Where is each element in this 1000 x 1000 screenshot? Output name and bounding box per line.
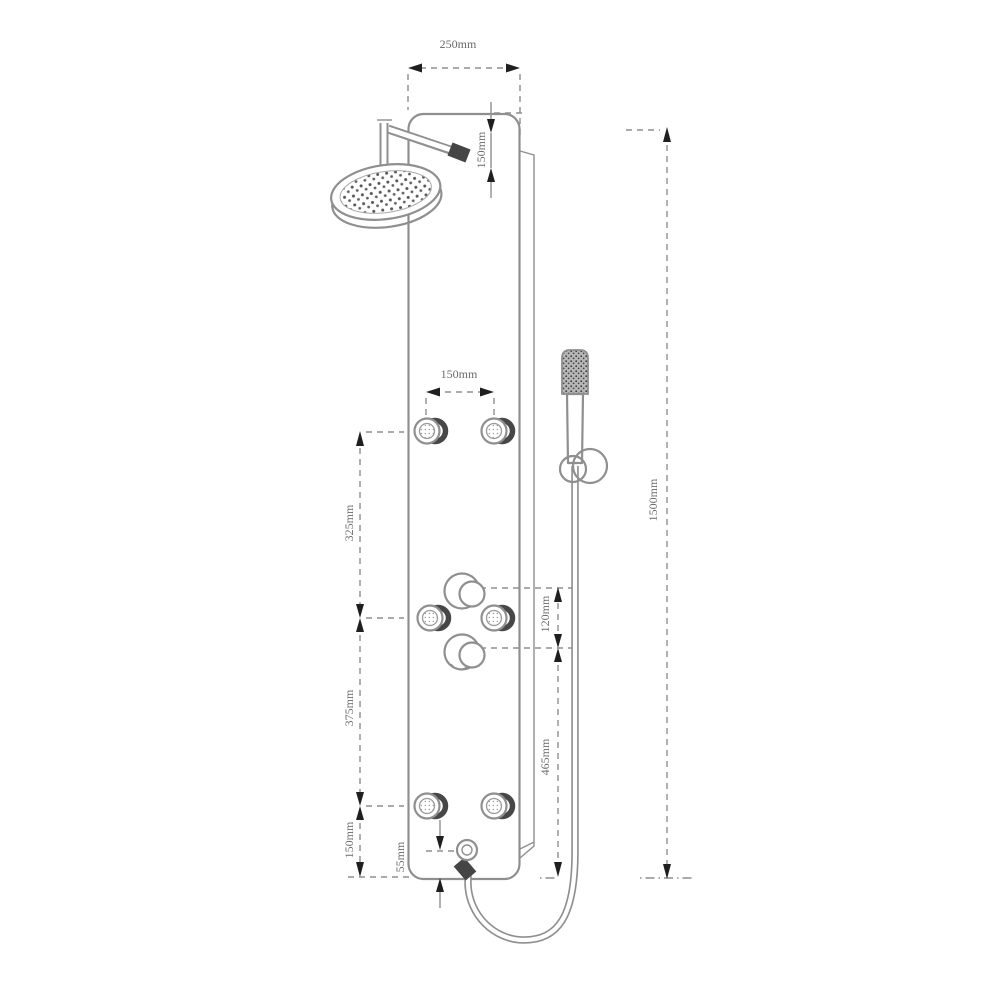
hand-shower [562, 350, 588, 463]
dim-label-top-width: 250mm [440, 37, 477, 51]
technical-drawing-canvas: 250mm 150mm 1500mm 325mm 375mm 150mm [0, 0, 1000, 1000]
dim-label-jet-spacing: 150mm [441, 367, 478, 381]
dim-label-outlet-height: 55mm [393, 841, 407, 872]
dim-label-controls-to-base: 465mm [538, 738, 552, 775]
arrowhead-right [506, 64, 520, 73]
shower-panel-diagram: 250mm 150mm 1500mm 325mm 375mm 150mm [0, 0, 1000, 1000]
dim-right-chain: 120mm 465mm [538, 587, 562, 877]
side-panel-edge [520, 151, 534, 858]
dim-label-lower-jets-to-base: 150mm [342, 821, 356, 858]
dim-left-chain: 325mm 375mm 150mm [342, 431, 364, 877]
hand-shower-head [562, 350, 588, 394]
dim-label-controls-to-lower-jets: 375mm [342, 689, 356, 726]
dim-label-jets-to-controls: 325mm [342, 504, 356, 541]
dim-label-knob-spacing: 120mm [538, 595, 552, 632]
dim-label-head-drop: 150mm [474, 131, 488, 168]
dim-total-height: 1500mm [646, 127, 671, 879]
dim-top-width: 250mm [408, 37, 520, 73]
dim-label-total-height: 1500mm [646, 478, 660, 521]
shower-arm-nut [450, 149, 468, 156]
hose-outlet-elbow [457, 840, 477, 876]
shower-panel-body [409, 114, 520, 879]
arrowhead-left [408, 64, 422, 73]
